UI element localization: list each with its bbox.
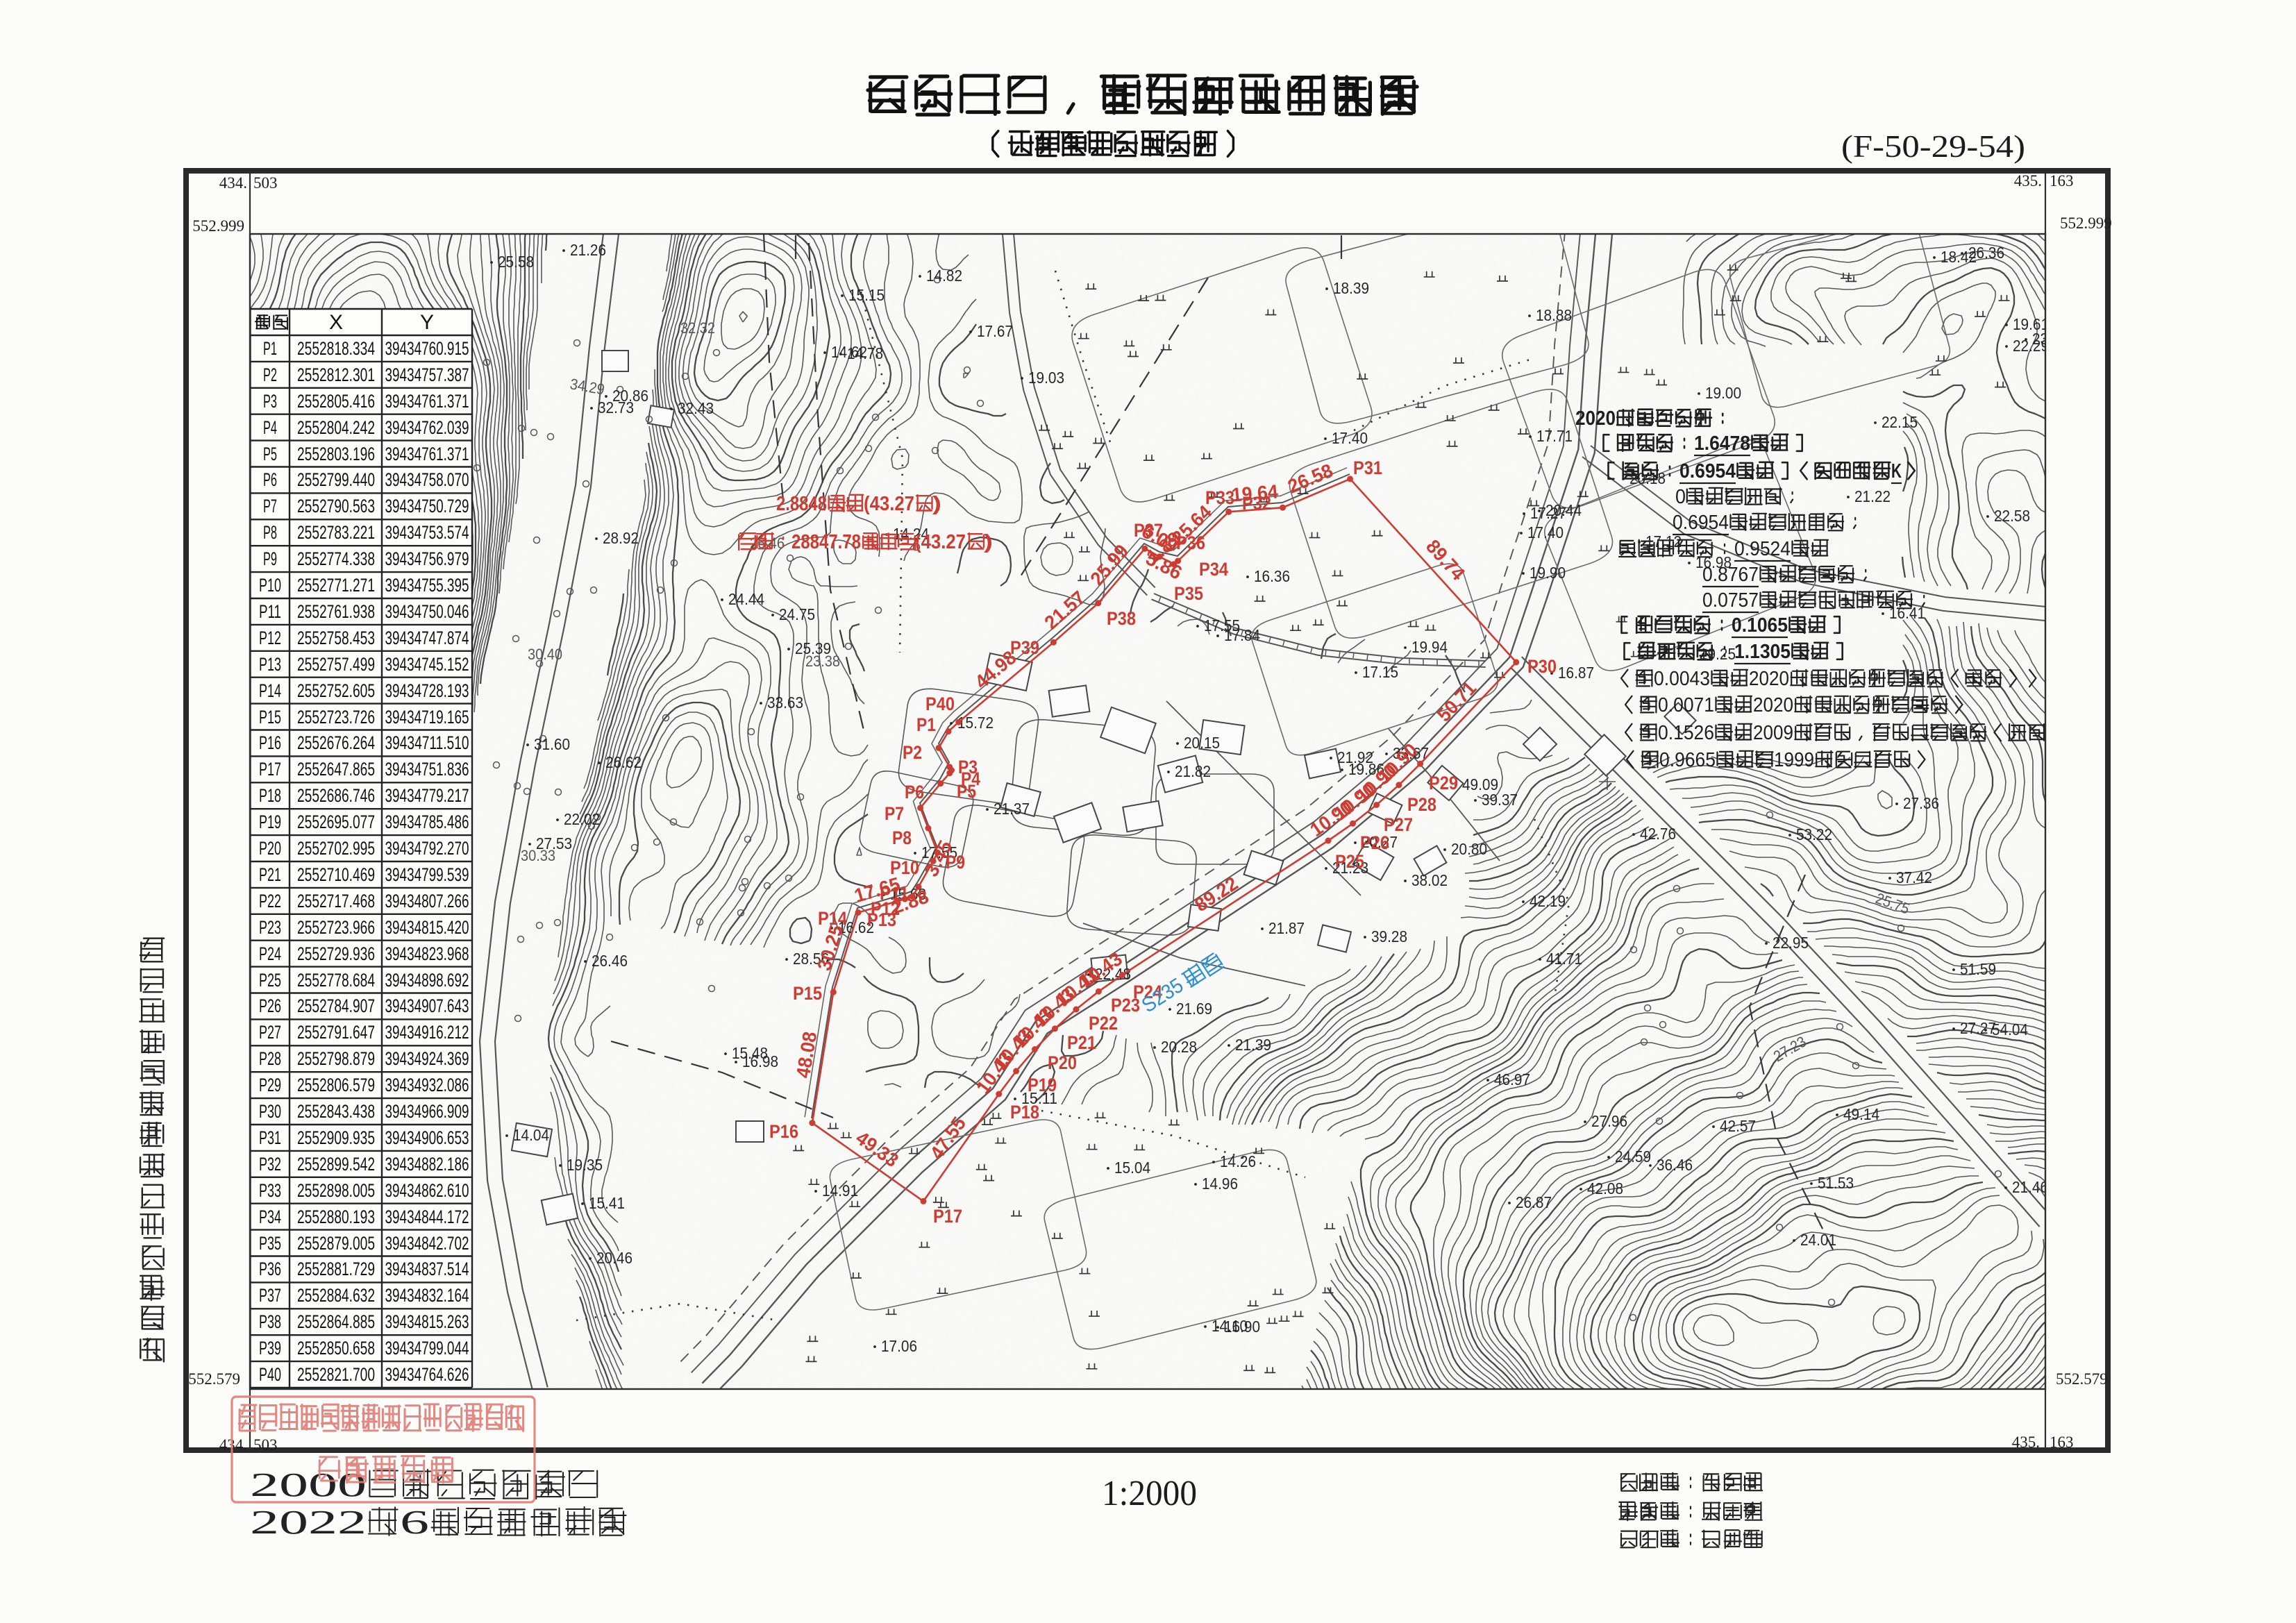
svg-text:2552676.264: 2552676.264 [297,732,375,753]
svg-text:39434799.539: 39434799.539 [385,864,469,885]
svg-text:P32: P32 [259,1154,281,1175]
svg-text:2552821.700: 2552821.700 [297,1364,375,1385]
svg-text:2552803.196: 2552803.196 [297,444,375,464]
svg-text:2552784.907: 2552784.907 [297,995,375,1016]
svg-text:6: 6 [400,1503,429,1541]
svg-text:1:2000: 1:2000 [1102,1474,1197,1513]
svg-text:39434966.909: 39434966.909 [385,1101,469,1122]
svg-text:39434832.164: 39434832.164 [385,1285,469,1306]
svg-text:39434799.044: 39434799.044 [385,1338,469,1359]
svg-text:P13: P13 [259,654,281,675]
svg-text:P4: P4 [263,417,277,438]
svg-text:39434750.729: 39434750.729 [385,496,469,516]
svg-text:P33: P33 [259,1180,281,1201]
svg-text:P18: P18 [259,785,281,806]
svg-text:39434837.514: 39434837.514 [385,1259,469,1279]
svg-text:2000: 2000 [250,1465,367,1504]
svg-text:P21: P21 [259,864,281,885]
svg-text:2552806.579: 2552806.579 [297,1075,375,1095]
svg-text:2552879.005: 2552879.005 [297,1233,375,1254]
svg-text:Y: Y [420,311,434,334]
svg-text:2552850.658: 2552850.658 [297,1338,375,1359]
svg-text:39434753.574: 39434753.574 [385,522,469,543]
svg-text:39434745.152: 39434745.152 [385,654,469,675]
svg-text:P34: P34 [259,1206,281,1227]
svg-text:P5: P5 [263,444,277,464]
svg-text:P9: P9 [263,548,277,569]
svg-text:39434750.046: 39434750.046 [385,601,469,622]
svg-text:163: 163 [2050,1433,2074,1451]
svg-text:2552686.746: 2552686.746 [297,785,375,806]
svg-text:P14: P14 [259,680,281,701]
svg-text:P25: P25 [259,970,281,991]
svg-text:P19: P19 [259,811,281,832]
svg-text:2552843.438: 2552843.438 [297,1101,375,1122]
svg-text:P27: P27 [259,1022,281,1043]
svg-text:P37: P37 [259,1285,281,1306]
svg-text:2552864.885: 2552864.885 [297,1311,375,1332]
svg-text:434.: 434. [219,1436,247,1454]
svg-text:2552758.453: 2552758.453 [297,628,375,648]
svg-text:39434906.653: 39434906.653 [385,1127,469,1148]
svg-text:39434815.263: 39434815.263 [385,1311,469,1332]
svg-text:39434764.626: 39434764.626 [385,1364,469,1385]
svg-text:435.: 435. [2014,172,2042,190]
svg-text:P3: P3 [263,391,277,412]
svg-text:P38: P38 [259,1311,281,1332]
svg-text:39434711.510: 39434711.510 [385,732,469,753]
svg-text:2552881.729: 2552881.729 [297,1259,375,1279]
svg-text:552.579: 552.579 [188,1370,240,1388]
svg-text:P28: P28 [259,1048,281,1069]
svg-text:2552880.193: 2552880.193 [297,1206,375,1227]
svg-text:P1: P1 [263,338,277,359]
svg-text:P11: P11 [259,601,281,622]
svg-text:P23: P23 [259,917,281,938]
svg-text:P30: P30 [259,1101,281,1122]
svg-text:2552804.242: 2552804.242 [297,417,375,438]
svg-text:2552778.684: 2552778.684 [297,970,375,991]
svg-text:2552783.221: 2552783.221 [297,522,375,543]
svg-text:503: 503 [253,1436,278,1454]
svg-text:P6: P6 [263,469,277,490]
svg-text:39434760.915: 39434760.915 [385,338,469,359]
svg-text:2552729.936: 2552729.936 [297,943,375,964]
svg-text:39434728.193: 39434728.193 [385,680,469,701]
svg-text:39434916.212: 39434916.212 [385,1022,469,1043]
svg-text:2552899.542: 2552899.542 [297,1154,375,1175]
svg-text:39434844.172: 39434844.172 [385,1206,469,1227]
svg-text:P26: P26 [259,995,281,1016]
svg-text:P39: P39 [259,1338,281,1359]
svg-text:552.999: 552.999 [2060,215,2112,232]
svg-text:(F-50-29-54): (F-50-29-54) [1841,128,2025,164]
svg-text:39434758.070: 39434758.070 [385,469,469,490]
svg-text:P7: P7 [263,496,277,516]
svg-text:39434792.270: 39434792.270 [385,838,469,859]
svg-text:P10: P10 [259,575,281,596]
svg-text:P40: P40 [259,1364,281,1385]
svg-text:39434747.874: 39434747.874 [385,628,469,648]
svg-text:39434719.165: 39434719.165 [385,707,469,728]
svg-text:2552647.865: 2552647.865 [297,759,375,780]
svg-text:2552757.499: 2552757.499 [297,654,375,675]
svg-text:2552723.966: 2552723.966 [297,917,375,938]
svg-text:P17: P17 [259,759,281,780]
svg-text:X: X [329,311,343,334]
svg-text:2552752.605: 2552752.605 [297,680,375,701]
svg-text:2552909.935: 2552909.935 [297,1127,375,1148]
svg-text:2552774.338: 2552774.338 [297,548,375,569]
svg-text:2552818.334: 2552818.334 [297,338,375,359]
svg-text:2552771.271: 2552771.271 [297,575,375,596]
svg-text:39434842.702: 39434842.702 [385,1233,469,1254]
svg-text:P15: P15 [259,707,281,728]
svg-text:552.999: 552.999 [192,217,244,235]
svg-text:2552898.005: 2552898.005 [297,1180,375,1201]
svg-text:2552790.563: 2552790.563 [297,496,375,516]
svg-text:39434757.387: 39434757.387 [385,364,469,385]
svg-text:2552702.995: 2552702.995 [297,838,375,859]
svg-text:P31: P31 [259,1127,281,1148]
svg-text:39434751.836: 39434751.836 [385,759,469,780]
svg-text:39434756.979: 39434756.979 [385,548,469,569]
svg-text:2552791.647: 2552791.647 [297,1022,375,1043]
svg-text:39434807.266: 39434807.266 [385,891,469,911]
svg-text:2552723.726: 2552723.726 [297,707,375,728]
svg-text:P16: P16 [259,732,281,753]
svg-text:2022: 2022 [250,1503,367,1541]
svg-text:434.: 434. [219,174,247,192]
svg-text:P8: P8 [263,522,277,543]
svg-text:P36: P36 [259,1259,281,1279]
svg-text:39434779.217: 39434779.217 [385,785,469,806]
svg-text:39434862.610: 39434862.610 [385,1180,469,1201]
svg-text:2552799.440: 2552799.440 [297,469,375,490]
svg-text:P2: P2 [263,364,277,385]
svg-text:435.: 435. [2012,1433,2040,1451]
svg-text:39434815.420: 39434815.420 [385,917,469,938]
svg-text:2552761.938: 2552761.938 [297,601,375,622]
svg-text:2552695.077: 2552695.077 [297,811,375,832]
svg-text:39434932.086: 39434932.086 [385,1075,469,1095]
svg-text:2552710.469: 2552710.469 [297,864,375,885]
svg-text:2552717.468: 2552717.468 [297,891,375,911]
svg-text:503: 503 [253,174,278,192]
svg-text:39434823.968: 39434823.968 [385,943,469,964]
svg-text:2552798.879: 2552798.879 [297,1048,375,1069]
svg-text:P20: P20 [259,838,281,859]
svg-text:39434907.643: 39434907.643 [385,995,469,1016]
svg-text:552.579: 552.579 [2056,1370,2108,1388]
svg-text:P12: P12 [259,628,281,648]
svg-text:39434761.371: 39434761.371 [385,391,469,412]
svg-text:39434762.039: 39434762.039 [385,417,469,438]
svg-text:39434761.371: 39434761.371 [385,444,469,464]
svg-text:P29: P29 [259,1075,281,1095]
svg-text:2552812.301: 2552812.301 [297,364,375,385]
svg-text:P22: P22 [259,891,281,911]
svg-text:39434785.486: 39434785.486 [385,811,469,832]
svg-text:163: 163 [2050,172,2074,190]
svg-text:2552884.632: 2552884.632 [297,1285,375,1306]
svg-text:39434755.395: 39434755.395 [385,575,469,596]
svg-text:39434898.692: 39434898.692 [385,970,469,991]
svg-text:P24: P24 [259,943,281,964]
svg-text:39434924.369: 39434924.369 [385,1048,469,1069]
svg-text:39434882.186: 39434882.186 [385,1154,469,1175]
svg-text:P35: P35 [259,1233,281,1254]
svg-text:2552805.416: 2552805.416 [297,391,375,412]
